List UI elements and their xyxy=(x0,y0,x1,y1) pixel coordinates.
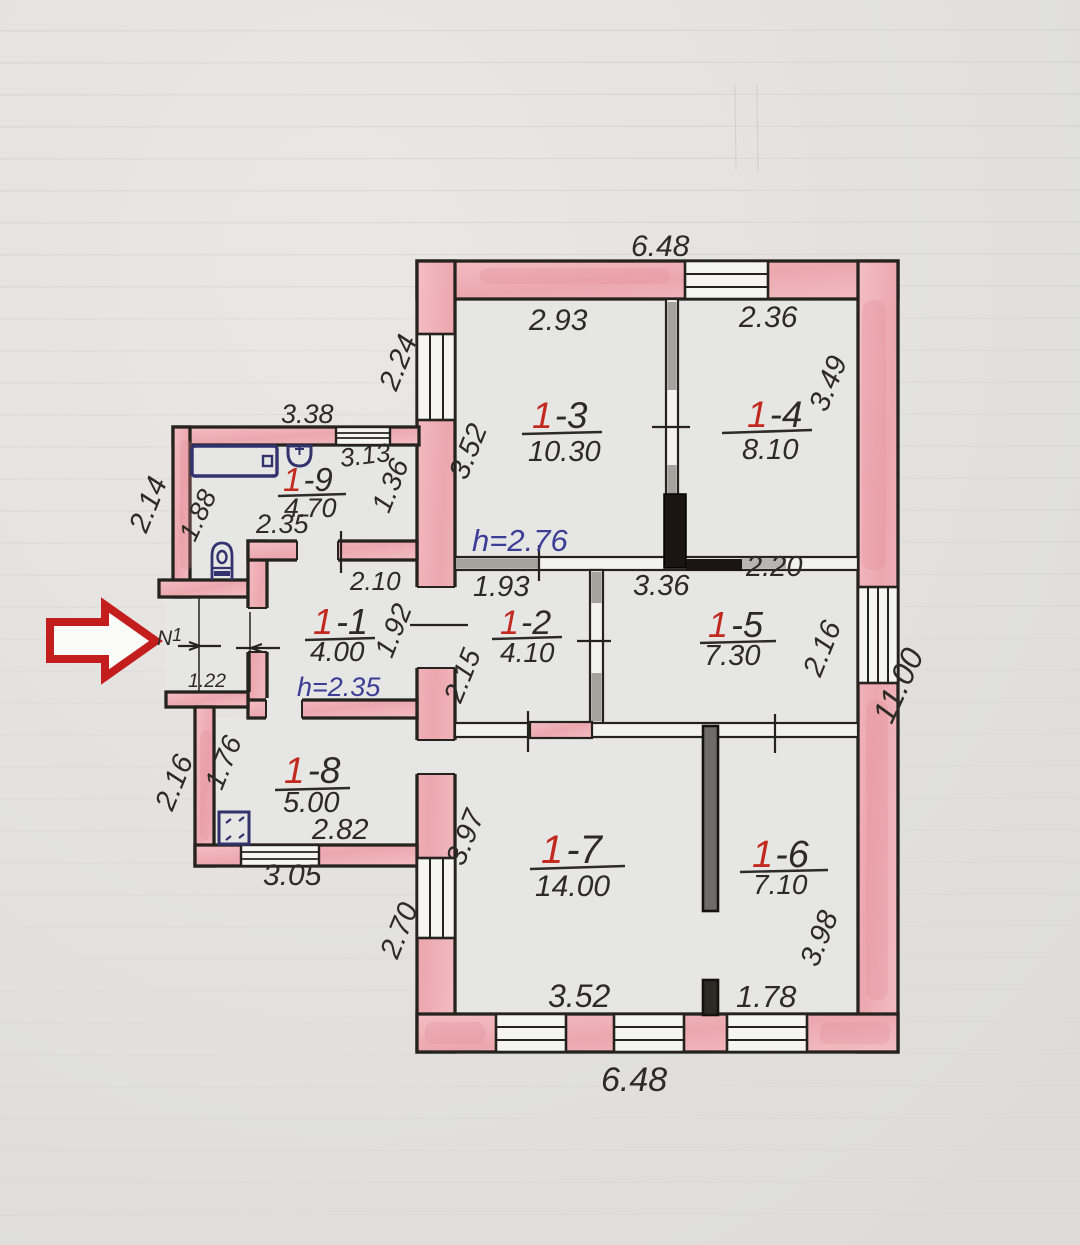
svg-text:1-3: 1-3 xyxy=(532,395,588,436)
svg-text:4.00: 4.00 xyxy=(310,636,365,667)
svg-text:2.35: 2.35 xyxy=(255,509,310,539)
svg-text:7.30: 7.30 xyxy=(704,640,760,672)
svg-text:1.78: 1.78 xyxy=(736,979,797,1014)
svg-text:2.10: 2.10 xyxy=(349,566,401,596)
svg-text:6.48: 6.48 xyxy=(601,1061,667,1099)
svg-text:h=2.76: h=2.76 xyxy=(472,523,568,558)
svg-text:3.38: 3.38 xyxy=(281,399,334,429)
svg-text:8.10: 8.10 xyxy=(742,434,798,466)
svg-text:2.93: 2.93 xyxy=(528,304,588,337)
svg-text:4.10: 4.10 xyxy=(500,637,555,668)
svg-text:1-5: 1-5 xyxy=(708,604,764,645)
svg-text:2.36: 2.36 xyxy=(738,301,798,334)
svg-text:6.48: 6.48 xyxy=(631,230,690,263)
svg-text:10.30: 10.30 xyxy=(528,436,601,468)
svg-text:1-8: 1-8 xyxy=(284,750,341,791)
svg-text:14.00: 14.00 xyxy=(535,870,610,903)
svg-text:1.22: 1.22 xyxy=(188,670,226,692)
svg-text:2.20: 2.20 xyxy=(745,551,802,583)
svg-text:1-4: 1-4 xyxy=(747,394,802,435)
svg-text:h=2.35: h=2.35 xyxy=(297,672,381,702)
svg-text:1-7: 1-7 xyxy=(541,828,604,872)
svg-text:3.05: 3.05 xyxy=(263,859,322,892)
svg-text:3.52: 3.52 xyxy=(548,978,610,1014)
svg-text:3.36: 3.36 xyxy=(633,570,690,602)
svg-text:1.93: 1.93 xyxy=(473,571,529,603)
svg-text:2.82: 2.82 xyxy=(311,814,368,846)
svg-text:7.10: 7.10 xyxy=(753,869,808,900)
